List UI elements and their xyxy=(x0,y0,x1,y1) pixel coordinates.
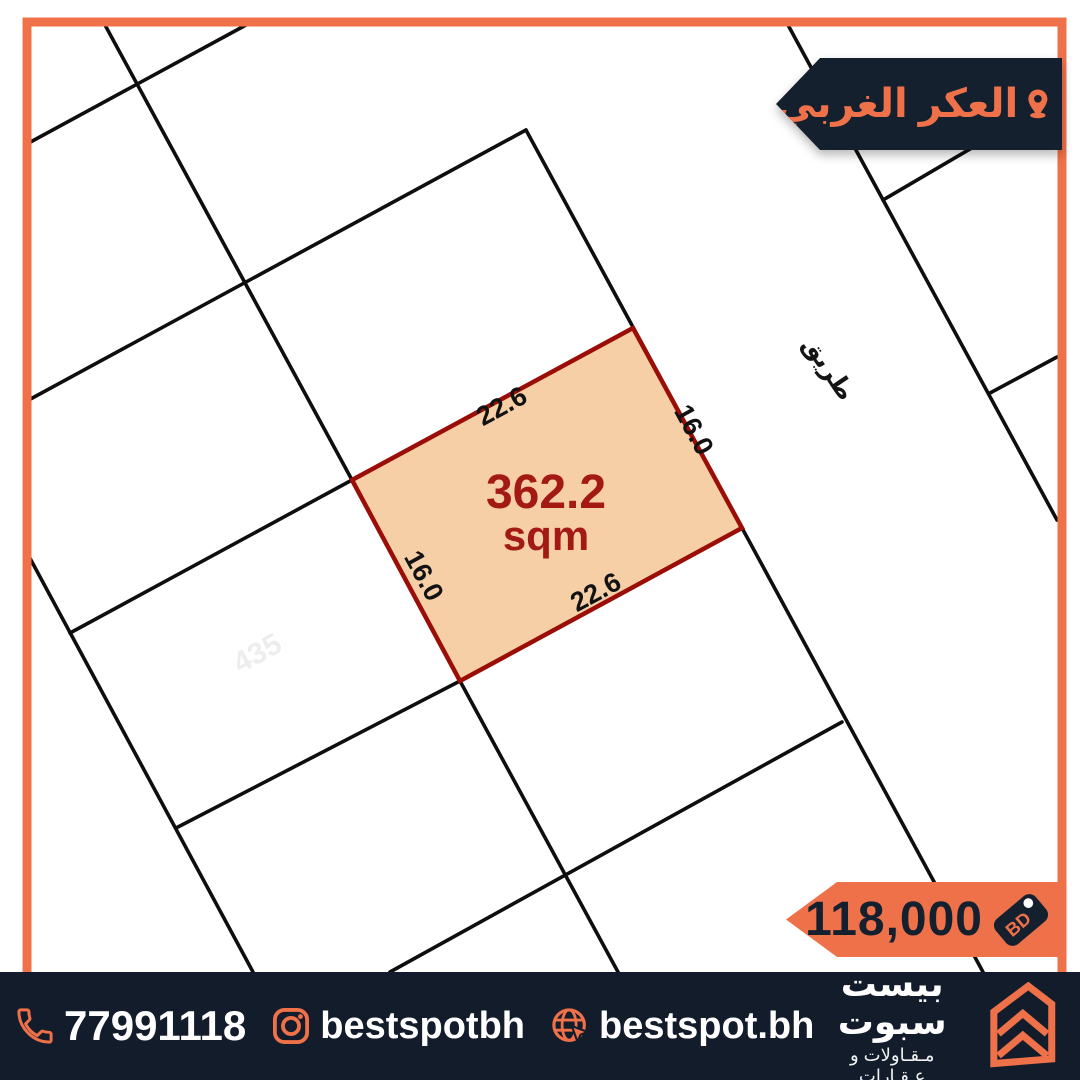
flyer: 435 22.6 16.0 22.6 16.0 362.2 sqm طريق ا… xyxy=(0,0,1080,1080)
globe-cursor-icon xyxy=(549,1005,591,1047)
price-banner: 118,000 BD xyxy=(786,882,1062,957)
location-banner: العكر الغربي xyxy=(776,58,1062,150)
phone-contact[interactable]: 77991118 xyxy=(14,1002,246,1050)
website-contact[interactable]: bestspot.bh xyxy=(549,1005,814,1048)
instagram-contact[interactable]: bestspotbh xyxy=(270,1005,525,1048)
website-url: bestspot.bh xyxy=(599,1005,814,1048)
phone-number: 77991118 xyxy=(64,1002,246,1050)
brand-block: بيست سبوت مـقـاولات و عـقـارات xyxy=(814,965,970,1080)
price-banner-shape: 118,000 BD xyxy=(786,882,1062,957)
location-pin-icon xyxy=(1027,71,1049,137)
plot-area-unit: sqm xyxy=(503,512,589,559)
location-banner-shape: العكر الغربي xyxy=(776,58,1062,150)
brand-tagline: مـقـاولات و عـقـارات xyxy=(814,1045,970,1080)
brand-logo xyxy=(986,982,1058,1070)
location-name: العكر الغربي xyxy=(776,81,1018,127)
pin-hole xyxy=(1034,95,1042,103)
phone-icon xyxy=(14,1005,56,1047)
price-amount: 118,000 xyxy=(805,892,983,947)
instagram-handle: bestspotbh xyxy=(320,1005,525,1048)
chevron-roof-logo-icon xyxy=(986,982,1058,1070)
footer-bar: 77991118 bestspotbh bestspot.bh بيست سبو… xyxy=(0,972,1080,1080)
instagram-icon xyxy=(270,1005,312,1047)
price-tag-icon: BD xyxy=(990,889,1052,951)
brand-name: بيست سبوت xyxy=(814,965,970,1041)
